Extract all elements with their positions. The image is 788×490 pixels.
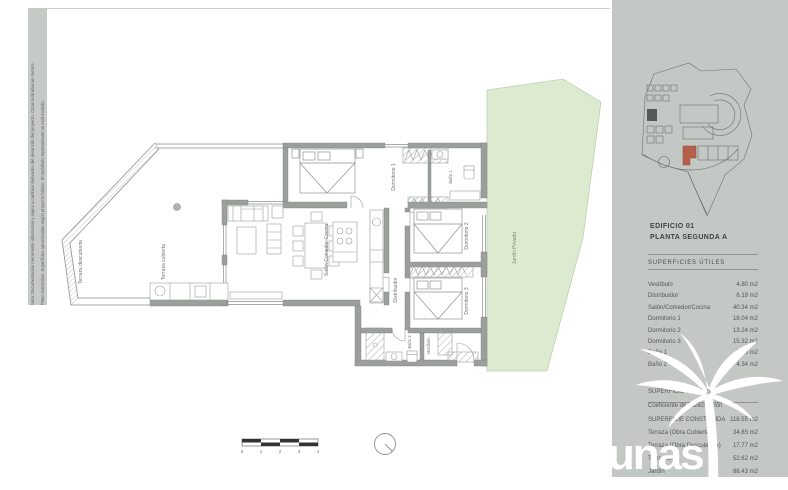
label-terraza-descubierta: Terraza descubierta xyxy=(78,240,84,284)
scale-tick-3: 3 xyxy=(298,449,301,454)
area-label: Salón/Comedor/Cocina xyxy=(648,305,710,311)
floor-plan-drawing: Terraza descubierta Terraza cubierta Sal… xyxy=(0,0,612,477)
terrace-outline xyxy=(62,143,283,305)
area-value: 4.80 m2 xyxy=(736,282,758,288)
area-row: Distribuidor6.19 m2 xyxy=(648,293,758,304)
label-jardin-privado: Jardín Privado xyxy=(512,232,518,264)
scale-tick-0: 0 xyxy=(241,449,244,454)
label-bano-1: Baño 1 xyxy=(448,170,453,184)
area-value: 18.04 m2 xyxy=(733,316,758,322)
label-bano-2: Baño 2 xyxy=(407,335,412,349)
floor-plan-sheet: { "sheet": { "note_1": "Nota: Documentac… xyxy=(0,0,788,477)
label-dormitorio-1: Dormitorio 1 xyxy=(391,163,397,190)
terrace-hatch-band xyxy=(62,143,159,305)
garden-area xyxy=(487,79,601,371)
divider-line xyxy=(648,254,758,255)
site-plan-highlight-unit xyxy=(683,146,696,165)
building-title: EDIFICIO 01 xyxy=(650,221,727,232)
furniture xyxy=(150,206,383,303)
scale-tick-2: 2 xyxy=(279,449,282,454)
column xyxy=(174,204,181,211)
area-value: 40.34 m2 xyxy=(733,305,758,311)
area-row: Salón/Comedor/Cocina40.34 m2 xyxy=(648,305,758,316)
info-panel: EDIFICIO 01 PLANTA SEGUNDA A SUPERFICIES… xyxy=(612,0,788,477)
area-label: Dormitorio 1 xyxy=(648,316,681,322)
areas-header: SUPERFICIES ÚTILES xyxy=(648,260,758,270)
scale-bar: 0 1 2 3 4 xyxy=(241,439,320,454)
area-row: Vestíbulo4.80 m2 xyxy=(648,282,758,293)
label-vestibulo: Vestíbulo xyxy=(426,337,431,355)
brand-wordmark: dunas xyxy=(583,437,703,473)
floor-title: PLANTA SEGUNDA A xyxy=(650,232,727,243)
scale-tick-1: 1 xyxy=(260,449,263,454)
area-label: Distribuidor xyxy=(648,293,678,299)
label-distribuidor: Distribuidor xyxy=(393,277,399,303)
title-block: EDIFICIO 01 PLANTA SEGUNDA A xyxy=(650,221,727,243)
label-terraza-cubierta: Terraza cubierta xyxy=(161,244,167,280)
area-value: 6.19 m2 xyxy=(736,293,758,299)
label-salon-comedor-cocina: Salón-Comedor-Cocina xyxy=(324,224,330,276)
north-indicator-icon xyxy=(375,434,396,455)
area-label: Vestíbulo xyxy=(648,282,673,288)
label-dormitorio-3: Dormitorio 3 xyxy=(464,287,470,314)
scale-tick-4: 4 xyxy=(317,449,320,454)
label-dormitorio-2: Dormitorio 2 xyxy=(464,222,470,249)
site-plan xyxy=(626,58,768,218)
